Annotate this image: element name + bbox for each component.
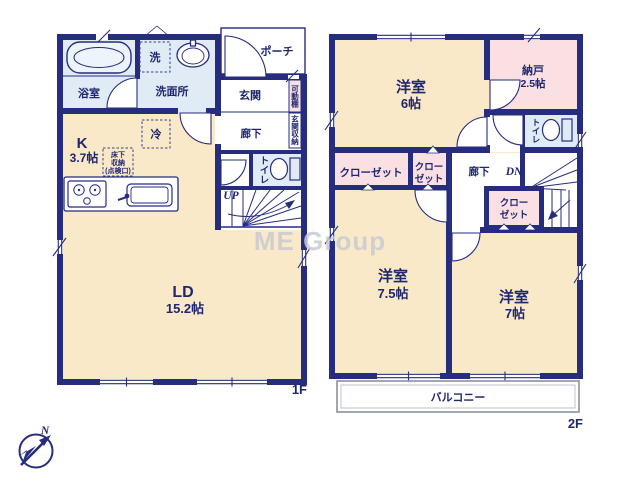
label-western1-size: 6帖 [401, 96, 421, 111]
label-western1: 洋室 [396, 78, 426, 96]
label-washer: 洗 [150, 50, 161, 64]
label-entrance-storage: 玄関収納 [290, 114, 299, 147]
toilet2-tank [562, 119, 572, 141]
label-ld: LD [172, 284, 193, 301]
floor-plan-svg: 浴室 洗面所 玄関 ポーチ 廊下 トイレ K 3.7帖 LD 15.2帖 洗 冷… [0, 0, 640, 480]
label-fridge: 冷 [151, 127, 162, 141]
label-western3: 洋室 [499, 288, 529, 306]
label-hall-1f: 廊下 [241, 127, 262, 140]
label-closet3-b: ゼット [500, 209, 529, 221]
watermark: ME Group [254, 226, 386, 256]
label-bath: 浴室 [78, 86, 100, 100]
label-entrance: 玄関 [239, 88, 261, 102]
label-kitchen: K [77, 135, 88, 152]
toilet2-bowl [543, 120, 560, 141]
label-underfloor-3: (点検口) [105, 166, 131, 175]
floor-plan-page: 浴室 洗面所 玄関 ポーチ 廊下 トイレ K 3.7帖 LD 15.2帖 洗 冷… [0, 0, 640, 480]
label-balcony: バルコニー [431, 391, 486, 404]
label-underfloor-1: 床下 [111, 150, 125, 159]
label-western2-size: 7.5帖 [377, 286, 408, 301]
compass-north-label: N [40, 425, 50, 437]
label-nando-size: 2.5帖 [520, 77, 546, 90]
toilet1-tank [290, 158, 300, 180]
label-floor1: 1F [292, 382, 307, 397]
label-ld-size: 15.2帖 [166, 301, 204, 316]
label-toilet-2f: トイレ [531, 118, 541, 144]
label-closet2-a: クロー [415, 162, 444, 173]
compass: N [19, 425, 53, 468]
label-dn: DN [505, 166, 523, 178]
label-kitchen-size: 3.7帖 [70, 150, 99, 165]
label-closet1: クローゼット [340, 166, 403, 179]
label-nando: 納戸 [522, 63, 544, 77]
label-up: UP [223, 190, 239, 202]
label-hall-2f: 廊下 [469, 165, 490, 178]
label-movable-shelf: 可動棚 [290, 84, 299, 108]
label-porch: ポーチ [261, 44, 294, 58]
bathtub-icon [67, 42, 131, 73]
label-washroom: 洗面所 [156, 84, 189, 98]
label-closet3-a: クロー [500, 198, 529, 209]
label-western3-size: 7帖 [505, 306, 525, 321]
toilet1-bowl [271, 159, 288, 180]
label-underfloor-2: 収納 [111, 158, 125, 167]
window-nando-north [524, 28, 540, 42]
label-closet2-b: ゼット [415, 173, 444, 185]
washbasin-tap [191, 40, 196, 46]
label-toilet-1f: トイレ [258, 156, 270, 185]
label-floor2: 2F [568, 416, 583, 431]
fixtures-2f [543, 119, 573, 141]
label-western2: 洋室 [378, 267, 408, 285]
